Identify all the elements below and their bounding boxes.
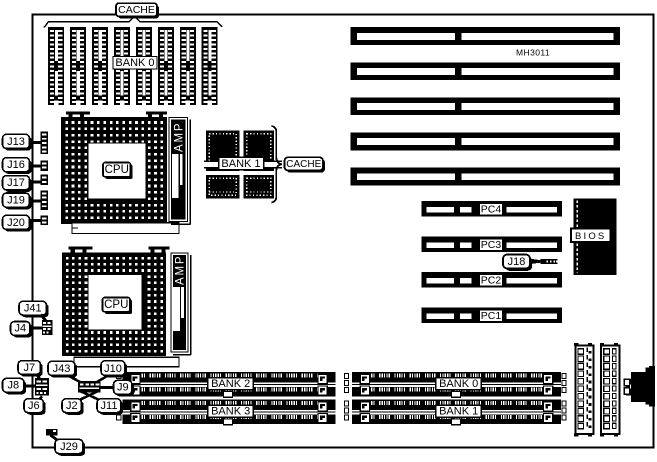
svg-text:BANK 0: BANK 0 (115, 57, 154, 69)
svg-text:PC3: PC3 (481, 239, 502, 251)
svg-text:J13: J13 (7, 136, 25, 148)
svg-text:J41: J41 (24, 303, 42, 315)
svg-text:J19: J19 (7, 195, 25, 207)
svg-text:J11: J11 (101, 400, 118, 412)
svg-text:AMP: AMP (173, 122, 185, 152)
svg-text:AMP: AMP (175, 255, 187, 285)
svg-text:J10: J10 (104, 363, 122, 375)
svg-text:J29: J29 (60, 441, 78, 453)
svg-text:BIOS: BIOS (575, 231, 607, 242)
svg-text:MH3011: MH3011 (516, 47, 550, 57)
svg-text:J43: J43 (53, 363, 71, 375)
svg-text:PC2: PC2 (481, 274, 502, 286)
svg-text:BANK 3: BANK 3 (211, 405, 250, 417)
svg-text:J17: J17 (7, 177, 25, 189)
svg-text:J8: J8 (7, 380, 19, 392)
svg-text:J16: J16 (7, 159, 25, 171)
svg-text:CACHE: CACHE (286, 159, 321, 170)
svg-text:J4: J4 (14, 323, 26, 335)
svg-text:BANK 2: BANK 2 (211, 378, 250, 390)
svg-text:CPU: CPU (105, 164, 129, 176)
svg-text:J18: J18 (508, 256, 526, 268)
svg-text:BANK 1: BANK 1 (439, 405, 478, 417)
svg-text:PC1: PC1 (481, 310, 502, 322)
svg-text:J9: J9 (117, 382, 129, 394)
svg-text:PC4: PC4 (481, 203, 502, 215)
svg-text:J20: J20 (7, 217, 25, 229)
svg-text:CPU: CPU (104, 299, 128, 311)
svg-text:J6: J6 (28, 400, 40, 412)
svg-text:BANK 1: BANK 1 (221, 158, 260, 170)
svg-text:CACHE: CACHE (118, 4, 155, 16)
svg-text:BANK 0: BANK 0 (439, 378, 478, 390)
svg-text:J7: J7 (23, 362, 35, 374)
svg-text:J2: J2 (66, 400, 78, 412)
